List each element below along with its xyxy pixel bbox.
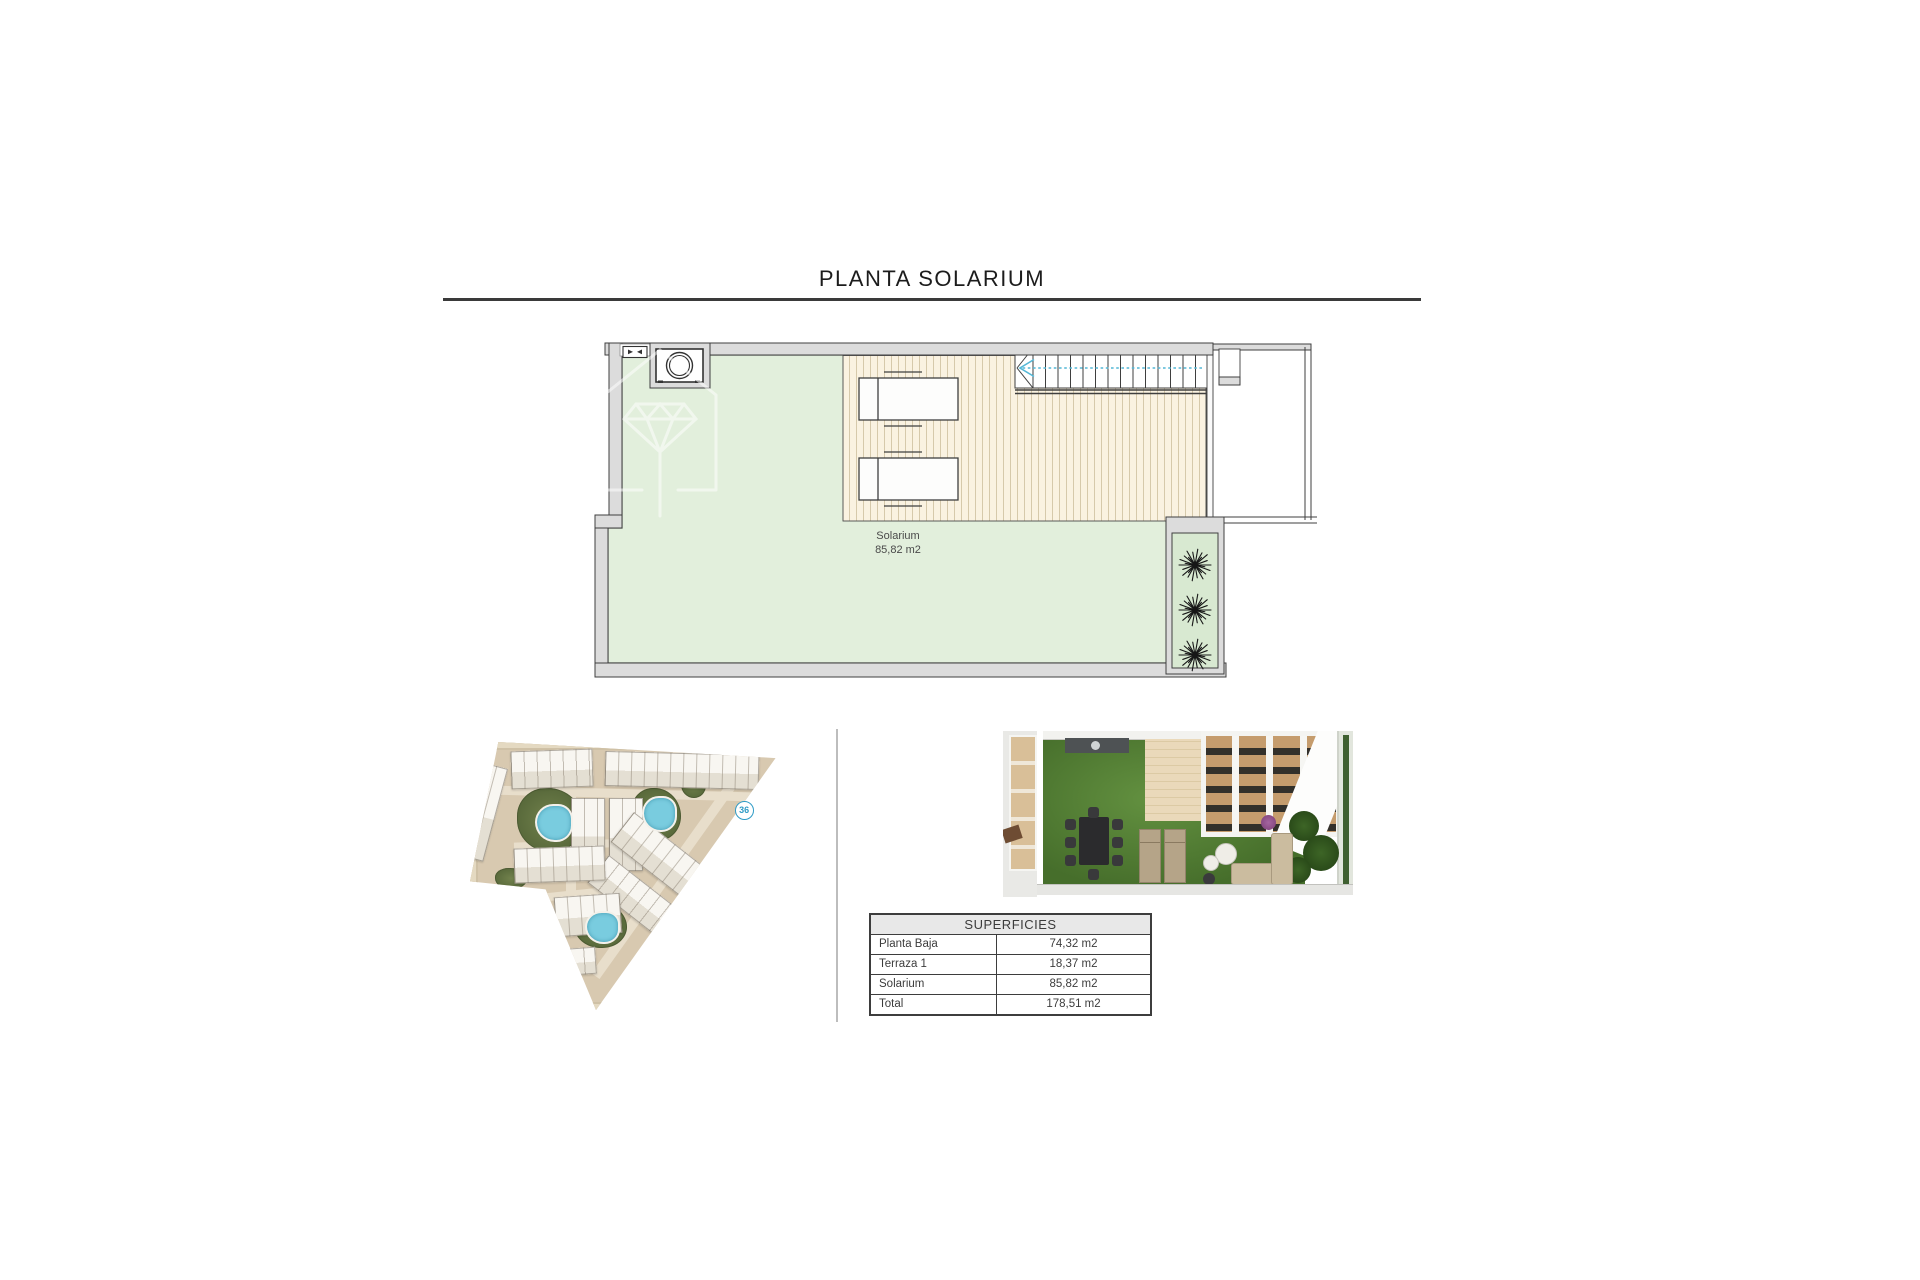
section-divider — [836, 729, 838, 1022]
table-header: SUPERFICIES — [871, 915, 1150, 935]
row-label: Planta Baja — [871, 935, 997, 954]
row-value: 74,32 m2 — [997, 935, 1150, 954]
building-row — [446, 759, 507, 862]
render-bbq-counter — [1065, 738, 1129, 753]
row-value: 85,82 m2 — [997, 975, 1150, 994]
render-lounger — [1164, 829, 1186, 883]
room-label: Solarium 85,82 m2 — [843, 529, 953, 557]
render-wood-wall — [1009, 735, 1037, 871]
title-underline — [443, 298, 1421, 301]
pool — [585, 911, 621, 944]
render-round-table — [1203, 855, 1219, 871]
row-label: Terraza 1 — [871, 955, 997, 974]
solarium-floor-plan: Solarium 85,82 m2 — [590, 340, 1330, 725]
render-purple-plant — [1261, 815, 1276, 830]
page: PLANTA SOLARIUM — [0, 0, 1920, 1280]
row-label: Solarium — [871, 975, 997, 994]
table-row: Total 178,51 m2 — [871, 995, 1150, 1014]
site-plan: 36 — [470, 742, 785, 1010]
room-area: 85,82 m2 — [843, 543, 953, 557]
render-side-planter — [1337, 731, 1353, 893]
render-dining-table — [1079, 817, 1109, 865]
render-chair — [1065, 819, 1076, 830]
row-value: 18,37 m2 — [997, 955, 1150, 974]
building-row — [605, 751, 760, 790]
table-row: Terraza 1 18,37 m2 — [871, 955, 1150, 975]
render-chair — [1112, 855, 1123, 866]
table-row: Solarium 85,82 m2 — [871, 975, 1150, 995]
render-chair — [1112, 837, 1123, 848]
render-chair — [1065, 855, 1076, 866]
render-chair — [1088, 869, 1099, 880]
render-chair — [1112, 819, 1123, 830]
render-sofa — [1271, 833, 1293, 885]
watermark-logo-icon — [590, 340, 730, 520]
render-lounger — [1139, 829, 1161, 883]
room-name: Solarium — [843, 529, 953, 543]
render-bottom-wall — [1037, 884, 1353, 895]
building-row — [510, 749, 593, 789]
building-row — [557, 947, 597, 976]
unit-badge: 36 — [735, 801, 754, 820]
row-label: Total — [871, 995, 997, 1014]
render-chair — [1065, 837, 1076, 848]
pool — [642, 796, 678, 832]
open-terrace-railing — [1213, 344, 1317, 523]
superficies-table: SUPERFICIES Planta Baja 74,32 m2 Terraza… — [869, 913, 1152, 1016]
row-value: 178,51 m2 — [997, 995, 1150, 1014]
planter — [1166, 517, 1224, 674]
terrace-3d-render — [1003, 731, 1353, 897]
watermark-text — [884, 698, 1070, 712]
render-chair — [1088, 807, 1099, 818]
site-plan-base — [470, 742, 785, 1010]
pergola-beam — [1232, 736, 1239, 832]
page-title: PLANTA SOLARIUM — [443, 266, 1421, 292]
render-deck — [1145, 739, 1203, 821]
right-inner-wall — [1207, 348, 1213, 518]
building-row — [514, 845, 607, 883]
table-row: Planta Baja 74,32 m2 — [871, 935, 1150, 955]
pool — [535, 804, 574, 843]
